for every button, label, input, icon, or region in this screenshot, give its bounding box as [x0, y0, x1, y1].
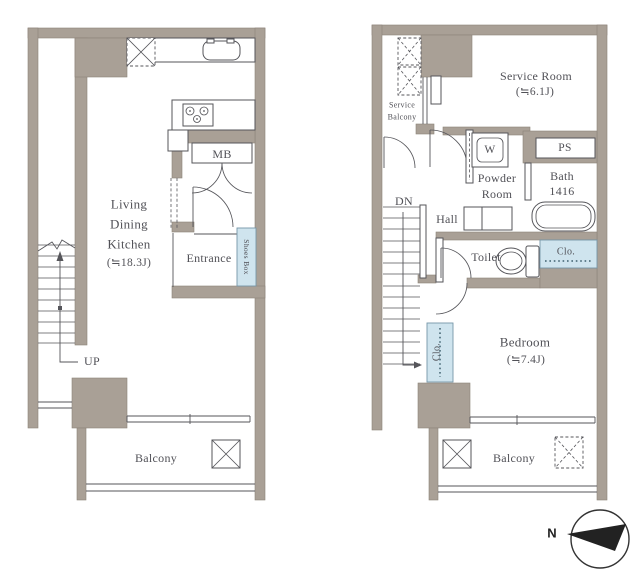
room-label-kitchen: Kitchen [107, 237, 150, 252]
wall-corridor-1f [172, 151, 182, 178]
wall-nw-block-2f [421, 35, 472, 77]
service-room-door-leaf [431, 76, 441, 104]
balcony-hatch-box-dashed-2f [555, 437, 583, 468]
room-size-ldk: (≒18.3J) [107, 257, 151, 269]
wall-balcony-block-1f [72, 378, 127, 428]
wall-mb-top-1f [188, 130, 255, 143]
north-arrow [567, 524, 626, 551]
kitchen-sink [203, 41, 240, 60]
balcony-window-2f [470, 415, 595, 425]
floorplan-image: MB Entrance Shoes Box UP Living Dining K… [0, 0, 639, 573]
sink-faucet-left [207, 39, 214, 43]
floor-plan-2f: Service Balcony Service Room (≒6.1J) W P… [372, 25, 607, 500]
stairs-1f [38, 240, 78, 362]
up-label: UP [84, 354, 100, 368]
room-label-bedroom: Bedroom [500, 335, 550, 350]
wall-top-1f [28, 28, 265, 38]
north-label: N [547, 526, 556, 541]
bath-divider-wall [525, 163, 531, 200]
balcony-edge-1f [86, 484, 255, 491]
wall-left-1f [28, 28, 38, 428]
refrigerator-space [127, 38, 155, 66]
room-label-powder-2: Room [482, 187, 513, 201]
sink-faucet-right [227, 39, 234, 43]
pipe-shaft-label: PS [558, 142, 571, 154]
mb-double-door-arcs [192, 163, 252, 193]
service-balcony-label-2: Balcony [388, 113, 417, 122]
room-label-service-room: Service Room [500, 69, 572, 83]
balcony-hatch-box-1f [212, 440, 240, 468]
wall-bedroom-north-east [540, 268, 597, 288]
wall-bedroom-north-west [467, 278, 540, 288]
washer-label: W [484, 144, 495, 156]
room-label-bath: Bath [550, 169, 574, 183]
stairs-2f [383, 207, 422, 369]
wall-left-2f [372, 25, 382, 430]
shoes-box-label: Shoes Box [242, 239, 251, 274]
room-size-bedroom: (≒7.4J) [507, 354, 545, 366]
stair-inner-wall-2f [420, 205, 426, 278]
toilet-west-wall [436, 238, 443, 282]
vanity-right [482, 207, 512, 230]
toilet-fixture [496, 246, 539, 277]
wall-balcony-left-1f [77, 428, 86, 500]
balcony-edge-2f [438, 486, 597, 492]
room-size-service-room: (≒6.1J) [516, 86, 554, 98]
vanity-left [464, 207, 482, 230]
wall-stairwell-1f [75, 38, 87, 345]
room-label-dining: Dining [110, 217, 148, 232]
service-balcony-label-1: Service [389, 101, 415, 110]
bedroom-closet-label: Clo. [432, 343, 443, 361]
bath-size-label: 1416 [549, 184, 574, 198]
bathtub [532, 202, 595, 231]
service-balcony-hatch [398, 38, 421, 95]
room-label-living: Living [111, 197, 148, 212]
wall-mid-2f [436, 232, 597, 240]
service-balcony-glass [423, 77, 427, 124]
landing-door-arc [430, 130, 467, 167]
balcony-window-1f [127, 414, 250, 424]
bedroom-door-arc [436, 283, 467, 314]
floor-plan-1f: MB Entrance Shoes Box UP Living Dining K… [28, 28, 265, 500]
meter-box-label: MB [212, 147, 231, 161]
stove [183, 104, 213, 126]
wall-entrance-stub-1f [172, 222, 194, 232]
dn-label: DN [395, 194, 413, 208]
service-balcony-door-arc [384, 137, 415, 168]
balcony-label-1f: Balcony [135, 451, 177, 465]
wall-top-2f [372, 25, 607, 35]
balcony-hatch-box-2f [443, 440, 471, 468]
wall-right-1f [255, 28, 265, 500]
room-label-powder-1: Powder [478, 171, 516, 185]
wall-sw-block-2f [418, 383, 470, 428]
wall-entrance-bottom-1f [172, 286, 265, 298]
toilet-door-arc [441, 248, 471, 278]
north-compass: N [547, 510, 629, 568]
front-door-arc [193, 187, 233, 227]
wall-right-2f [597, 25, 607, 500]
room-label-hall: Hall [436, 212, 458, 226]
hall-closet-label: Clo. [557, 247, 575, 258]
wall-service-balcony-stub [416, 124, 434, 134]
balcony-label-2f: Balcony [493, 451, 535, 465]
wall-kitchen-block-1f [75, 38, 127, 77]
wall-balcony-left-2f [429, 428, 438, 500]
entrance-label: Entrance [186, 251, 231, 265]
kitchen-cabinet [168, 130, 188, 151]
room-label-toilet: Toilet [471, 250, 501, 264]
stairwell-window-1f [38, 402, 72, 408]
